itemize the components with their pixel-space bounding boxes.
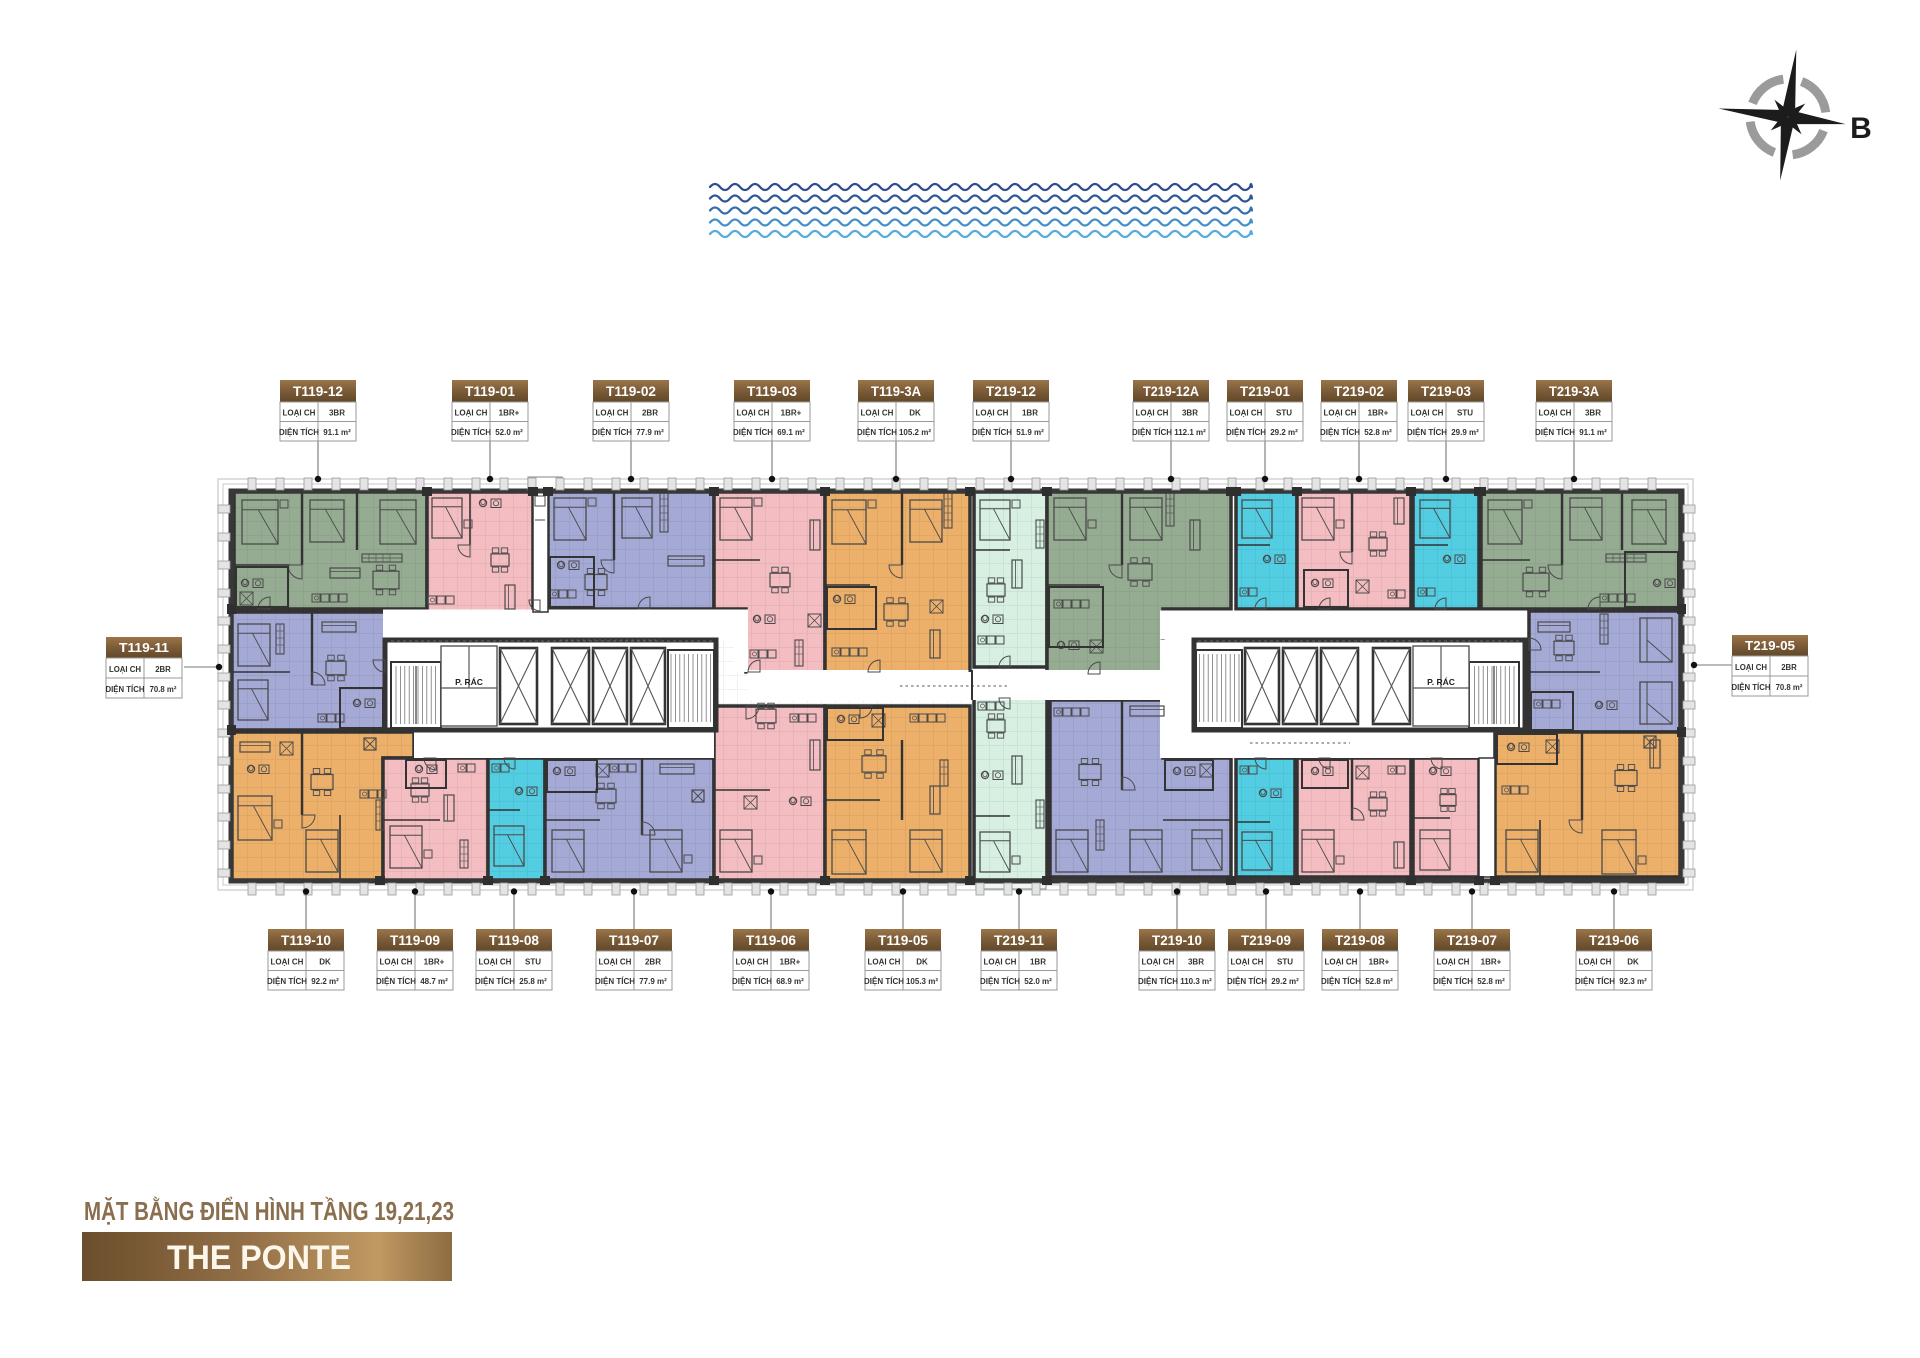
svg-text:LOẠI CH: LOẠI CH	[271, 958, 304, 967]
svg-text:91.1 m²: 91.1 m²	[1579, 428, 1607, 437]
svg-text:LOẠI CH: LOẠI CH	[1411, 409, 1444, 418]
svg-text:STU: STU	[1276, 409, 1292, 418]
svg-text:DIỆN TÍCH: DIỆN TÍCH	[1407, 428, 1447, 437]
svg-text:DK: DK	[916, 958, 928, 967]
svg-text:1BR+: 1BR+	[1481, 958, 1502, 967]
svg-text:70.8 m²: 70.8 m²	[1776, 683, 1803, 692]
svg-text:T219-06: T219-06	[1589, 932, 1639, 948]
svg-text:105.3 m²: 105.3 m²	[906, 977, 938, 986]
svg-text:T219-08: T219-08	[1335, 932, 1385, 948]
svg-text:DIỆN TÍCH: DIỆN TÍCH	[732, 977, 772, 986]
svg-text:LOẠI CH: LOẠI CH	[479, 958, 512, 967]
svg-text:DIỆN TÍCH: DIỆN TÍCH	[106, 685, 145, 694]
svg-text:LOẠI CH: LOẠI CH	[1437, 958, 1470, 967]
svg-text:29.2 m²: 29.2 m²	[1271, 977, 1299, 986]
svg-text:T119-08: T119-08	[489, 932, 539, 948]
svg-text:DIỆN TÍCH: DIỆN TÍCH	[1732, 683, 1771, 692]
svg-text:T119-3A: T119-3A	[871, 383, 921, 399]
svg-text:DK: DK	[909, 409, 921, 418]
svg-text:1BR+: 1BR+	[781, 409, 802, 418]
svg-text:T219-12A: T219-12A	[1143, 383, 1199, 399]
svg-text:T219-07: T219-07	[1447, 932, 1497, 948]
svg-text:112.1 m²: 112.1 m²	[1174, 428, 1206, 437]
svg-text:LOẠI CH: LOẠI CH	[1230, 409, 1263, 418]
svg-text:DIỆN TÍCH: DIỆN TÍCH	[475, 977, 515, 986]
svg-text:T219-01: T219-01	[1240, 383, 1290, 399]
svg-text:DIỆN TÍCH: DIỆN TÍCH	[1320, 428, 1360, 437]
svg-text:LOẠI CH: LOẠI CH	[380, 958, 413, 967]
svg-text:92.2 m²: 92.2 m²	[311, 977, 339, 986]
svg-text:DIỆN TÍCH: DIỆN TÍCH	[1132, 428, 1172, 437]
svg-text:69.1 m²: 69.1 m²	[777, 428, 805, 437]
svg-text:LOẠI CH: LOẠI CH	[1735, 663, 1767, 672]
svg-text:52.0 m²: 52.0 m²	[1024, 977, 1052, 986]
svg-text:DIỆN TÍCH: DIỆN TÍCH	[1227, 977, 1267, 986]
svg-text:LOẠI CH: LOẠI CH	[737, 409, 770, 418]
svg-text:DIỆN TÍCH: DIỆN TÍCH	[980, 977, 1020, 986]
svg-text:2BR: 2BR	[642, 409, 658, 418]
svg-text:T219-11: T219-11	[994, 932, 1044, 948]
svg-text:52.8 m²: 52.8 m²	[1477, 977, 1505, 986]
svg-text:1BR: 1BR	[1022, 409, 1038, 418]
svg-text:110.3 m²: 110.3 m²	[1180, 977, 1212, 986]
svg-text:T219-12: T219-12	[986, 383, 1036, 399]
svg-text:29.2 m²: 29.2 m²	[1270, 428, 1298, 437]
svg-text:T219-3A: T219-3A	[1549, 383, 1599, 399]
svg-text:2BR: 2BR	[155, 665, 171, 674]
svg-text:LOẠI CH: LOẠI CH	[976, 409, 1009, 418]
svg-text:LOẠI CH: LOẠI CH	[736, 958, 769, 967]
svg-text:92.3 m²: 92.3 m²	[1619, 977, 1647, 986]
svg-text:STU: STU	[1457, 409, 1473, 418]
svg-text:LOẠI CH: LOẠI CH	[596, 409, 629, 418]
svg-text:T219-03: T219-03	[1421, 383, 1471, 399]
svg-text:DIỆN TÍCH: DIỆN TÍCH	[595, 977, 635, 986]
svg-text:DIỆN TÍCH: DIỆN TÍCH	[451, 428, 491, 437]
svg-text:3BR: 3BR	[1188, 958, 1204, 967]
svg-text:68.9 m²: 68.9 m²	[776, 977, 804, 986]
svg-text:25.8 m²: 25.8 m²	[519, 977, 547, 986]
svg-text:T119-01: T119-01	[465, 383, 515, 399]
svg-text:STU: STU	[1277, 958, 1293, 967]
svg-text:DIỆN TÍCH: DIỆN TÍCH	[376, 977, 416, 986]
svg-text:STU: STU	[525, 958, 541, 967]
svg-text:T119-05: T119-05	[878, 932, 928, 948]
svg-text:LOẠI CH: LOẠI CH	[455, 409, 488, 418]
svg-text:3BR: 3BR	[1182, 409, 1198, 418]
svg-text:T119-09: T119-09	[390, 932, 440, 948]
svg-text:P. RÁC: P. RÁC	[455, 677, 483, 687]
svg-text:2BR: 2BR	[645, 958, 661, 967]
svg-text:3BR: 3BR	[329, 409, 345, 418]
svg-text:DIỆN TÍCH: DIỆN TÍCH	[1575, 977, 1615, 986]
svg-text:DIỆN TÍCH: DIỆN TÍCH	[1138, 977, 1178, 986]
svg-text:DIỆN TÍCH: DIỆN TÍCH	[1226, 428, 1266, 437]
svg-text:LOẠI CH: LOẠI CH	[1142, 958, 1175, 967]
svg-text:T219-05: T219-05	[1745, 638, 1795, 653]
svg-text:LOẠI CH: LOẠI CH	[984, 958, 1017, 967]
svg-text:T119-03: T119-03	[747, 383, 797, 399]
svg-text:T119-06: T119-06	[746, 932, 796, 948]
svg-text:DIỆN TÍCH: DIỆN TÍCH	[1321, 977, 1361, 986]
svg-text:DIỆN TÍCH: DIỆN TÍCH	[592, 428, 632, 437]
svg-text:DIỆN TÍCH: DIỆN TÍCH	[864, 977, 904, 986]
svg-text:LOẠI CH: LOẠI CH	[1324, 409, 1357, 418]
svg-text:1BR+: 1BR+	[424, 958, 445, 967]
svg-text:T119-02: T119-02	[606, 383, 656, 399]
svg-text:DIỆN TÍCH: DIỆN TÍCH	[1535, 428, 1575, 437]
svg-text:LOẠI CH: LOẠI CH	[1579, 958, 1612, 967]
svg-text:1BR: 1BR	[1030, 958, 1046, 967]
svg-text:DIỆN TÍCH: DIỆN TÍCH	[857, 428, 897, 437]
svg-text:T119-07: T119-07	[609, 932, 659, 948]
svg-text:DIỆN TÍCH: DIỆN TÍCH	[279, 428, 319, 437]
svg-text:B: B	[1850, 112, 1872, 145]
svg-text:T219-02: T219-02	[1334, 383, 1384, 399]
svg-text:52.0 m²: 52.0 m²	[495, 428, 523, 437]
svg-text:LOẠI CH: LOẠI CH	[1231, 958, 1264, 967]
svg-text:48.7 m²: 48.7 m²	[420, 977, 448, 986]
svg-text:1BR+: 1BR+	[499, 409, 520, 418]
svg-text:1BR+: 1BR+	[780, 958, 801, 967]
svg-text:91.1 m²: 91.1 m²	[323, 428, 351, 437]
svg-text:DK: DK	[319, 958, 331, 967]
svg-text:T219-09: T219-09	[1241, 932, 1291, 948]
svg-text:DIỆN TÍCH: DIỆN TÍCH	[972, 428, 1012, 437]
svg-text:T119-10: T119-10	[281, 932, 331, 948]
svg-text:2BR: 2BR	[1781, 663, 1797, 672]
svg-text:LOẠI CH: LOẠI CH	[599, 958, 632, 967]
svg-text:3BR: 3BR	[1585, 409, 1601, 418]
svg-text:105.2 m²: 105.2 m²	[899, 428, 931, 437]
svg-text:51.9 m²: 51.9 m²	[1016, 428, 1044, 437]
svg-text:LOẠI CH: LOẠI CH	[109, 665, 141, 674]
svg-text:52.8 m²: 52.8 m²	[1364, 428, 1392, 437]
svg-text:1BR+: 1BR+	[1369, 958, 1390, 967]
svg-text:P. RÁC: P. RÁC	[1427, 677, 1455, 687]
svg-text:THE PONTE: THE PONTE	[167, 1239, 351, 1277]
svg-text:1BR+: 1BR+	[1368, 409, 1389, 418]
svg-text:DIỆN TÍCH: DIỆN TÍCH	[1433, 977, 1473, 986]
svg-text:T119-11: T119-11	[119, 640, 169, 655]
svg-text:77.9 m²: 77.9 m²	[639, 977, 667, 986]
svg-text:52.8 m²: 52.8 m²	[1365, 977, 1393, 986]
svg-text:70.8 m²: 70.8 m²	[150, 685, 177, 694]
svg-text:LOẠI CH: LOẠI CH	[861, 409, 894, 418]
svg-text:77.9 m²: 77.9 m²	[636, 428, 664, 437]
svg-text:LOẠI CH: LOẠI CH	[283, 409, 316, 418]
svg-text:LOẠI CH: LOẠI CH	[868, 958, 901, 967]
svg-text:MẶT BẰNG ĐIỂN HÌNH TẦNG 19,21,: MẶT BẰNG ĐIỂN HÌNH TẦNG 19,21,23	[84, 1196, 454, 1226]
svg-text:LOẠI CH: LOẠI CH	[1325, 958, 1358, 967]
svg-text:DK: DK	[1627, 958, 1639, 967]
svg-text:T219-10: T219-10	[1152, 932, 1202, 948]
svg-text:DIỆN TÍCH: DIỆN TÍCH	[733, 428, 773, 437]
svg-text:29.9 m²: 29.9 m²	[1451, 428, 1479, 437]
svg-text:LOẠI CH: LOẠI CH	[1539, 409, 1572, 418]
svg-text:DIỆN TÍCH: DIỆN TÍCH	[267, 977, 307, 986]
svg-text:LOẠI CH: LOẠI CH	[1136, 409, 1169, 418]
svg-text:T119-12: T119-12	[293, 383, 343, 399]
